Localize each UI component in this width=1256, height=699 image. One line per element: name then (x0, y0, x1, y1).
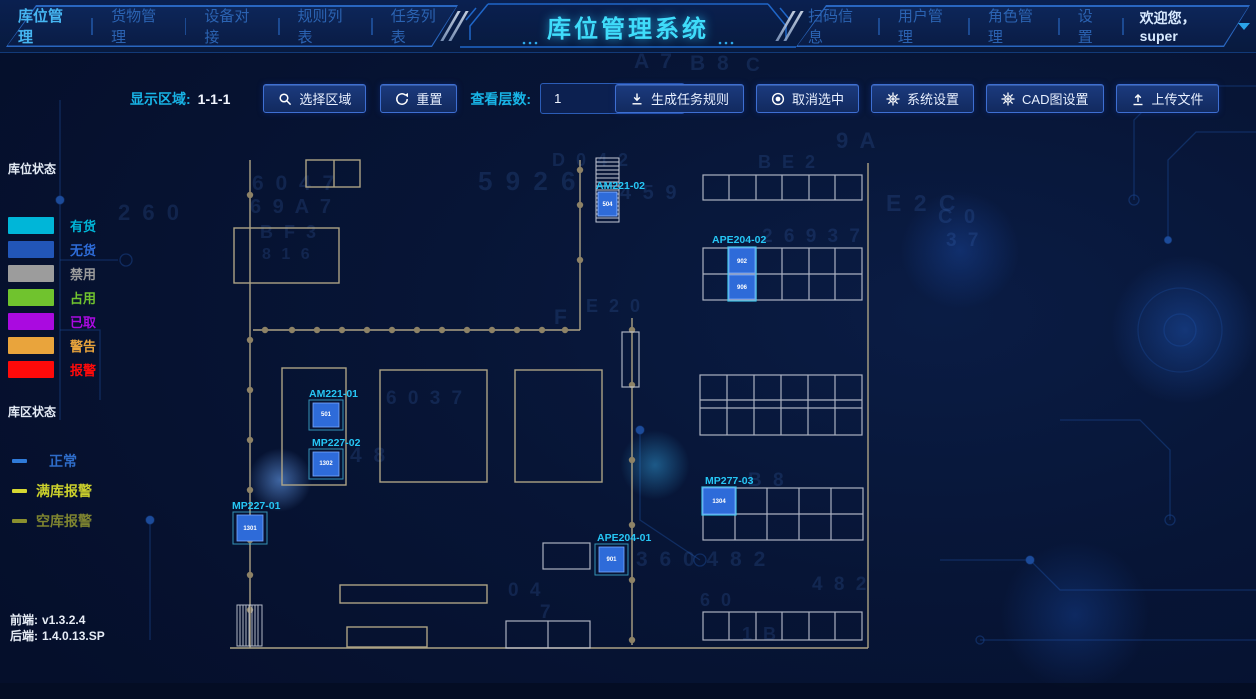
cell-number: 1304 (712, 499, 726, 505)
reset-button[interactable]: 重置 (380, 84, 457, 113)
search-icon (278, 92, 292, 106)
storage-unit-ape204-02[interactable]: 902 906 APE204-02 (712, 234, 766, 301)
bottom-band (0, 683, 1256, 699)
nav-separator (185, 18, 187, 35)
top-bar: 库位管理货物管理设备对接规则列表任务列表 库位管理系统 扫码信息用户管理角色管理… (0, 0, 1256, 53)
stairs-bottom (237, 605, 262, 646)
top-nav-item[interactable]: 用户管理 (886, 5, 962, 47)
upload-file-button[interactable]: 上传文件 (1116, 84, 1219, 113)
storage-unit-am221-02[interactable]: 504 AM221-02 (596, 180, 645, 216)
nav-separator (968, 18, 970, 35)
upload-file-label: 上传文件 (1152, 89, 1204, 108)
toolbar-left: 显示区域: 1-1-1 选择区域 重置 查看层数: 1 (130, 84, 685, 113)
unit-label: APE204-02 (712, 234, 766, 246)
page-title: 库位管理系统 (547, 9, 709, 44)
top-nav-item[interactable]: 任务列表 (379, 5, 458, 47)
storage-unit-am221-01[interactable]: 501 AM221-01 (309, 388, 358, 430)
legend-label: 报警 (70, 360, 96, 379)
nav-left-items: 库位管理货物管理设备对接规则列表任务列表 (6, 5, 458, 47)
nav-separator (278, 18, 280, 35)
slot-status-title: 库位状态 (8, 160, 96, 177)
legend-label: 禁用 (70, 264, 96, 283)
cell-number: 1302 (319, 461, 333, 467)
nav-right-group: 扫码信息用户管理角色管理设置 欢迎您，super (796, 5, 1250, 47)
nav-separator (371, 18, 373, 35)
nav-left-group: 库位管理货物管理设备对接规则列表任务列表 (6, 5, 458, 47)
legend-line-swatch (12, 489, 27, 493)
legend-color-swatch (8, 337, 54, 354)
frontend-version: 前端:v1.3.2.4 (10, 612, 109, 628)
decor-hex-text: C (746, 55, 763, 77)
legend-label: 正常 (49, 451, 77, 471)
refresh-icon (395, 92, 409, 106)
cell-number: 504 (602, 202, 613, 208)
backend-version-value: 1.4.0.13.SP (42, 629, 105, 643)
legend-label: 已取 (70, 312, 96, 331)
cell-number: 501 (321, 412, 332, 418)
legend-label: 满库报警 (36, 481, 92, 501)
legend-label: 空库报警 (36, 511, 92, 531)
select-area-label: 选择区域 (299, 89, 351, 108)
toolbar: 显示区域: 1-1-1 选择区域 重置 查看层数: 1 (0, 84, 1256, 114)
legend-row: 满库报警 (8, 476, 96, 506)
record-circle-icon (771, 92, 785, 106)
nav-right-wrap: 扫码信息用户管理角色管理设置 欢迎您，super (796, 5, 1250, 47)
top-nav-item[interactable]: 扫码信息 (796, 5, 872, 47)
top-nav-item[interactable]: 设备对接 (192, 5, 271, 47)
decor-hex-text: A 7 (634, 50, 675, 74)
legend-row: 有货 (8, 213, 96, 237)
legend-row: 无货 (8, 237, 96, 261)
legend-color-swatch (8, 217, 54, 234)
nav-separator (878, 18, 880, 35)
display-area-value: 1-1-1 (198, 91, 231, 107)
nav-separator (1122, 18, 1124, 35)
gear-icon (1001, 92, 1015, 106)
zone-status-legend: 正常满库报警空库报警 (8, 446, 96, 536)
zone-status-title: 库区状态 (8, 403, 96, 420)
cell-number: 906 (737, 285, 748, 291)
legend-row: 禁用 (8, 261, 96, 285)
plan-rack-grids (506, 175, 863, 648)
backend-version-label: 后端: (10, 629, 38, 643)
select-area-button[interactable]: 选择区域 (263, 84, 366, 113)
download-icon (630, 92, 644, 106)
nav-separator (91, 18, 93, 35)
user-menu[interactable]: 欢迎您，super (1140, 8, 1250, 44)
system-settings-label: 系统设置 (907, 89, 959, 108)
legend-line-swatch (12, 459, 27, 463)
slot-status-legend: 有货无货禁用占用已取警告报警 (8, 213, 96, 381)
frontend-version-label: 前端: (10, 613, 38, 627)
cancel-select-label: 取消选中 (792, 89, 844, 108)
floor-plan: 504 AM221-02 902 906 APE204-02 501 AM221… (225, 150, 885, 658)
view-layer-label: 查看层数: (470, 89, 531, 109)
legend-label: 无货 (70, 240, 96, 259)
system-settings-button[interactable]: 系统设置 (871, 84, 974, 113)
gear-icon (886, 92, 900, 106)
legend-color-swatch (8, 241, 54, 258)
unit-label: MP277-03 (705, 475, 754, 487)
legend-row: 警告 (8, 333, 96, 357)
welcome-text: 欢迎您，super (1140, 8, 1224, 44)
unit-label: MP227-01 (232, 500, 281, 512)
decor-hex-text: 2 6 0 (118, 200, 182, 226)
unit-label: AM221-01 (309, 388, 358, 400)
generate-rules-label: 生成任务规则 (651, 89, 729, 108)
unit-label: APE204-01 (597, 532, 651, 544)
legend-label: 警告 (70, 336, 96, 355)
generate-rules-button[interactable]: 生成任务规则 (615, 84, 744, 113)
top-nav-item[interactable]: 库位管理 (6, 5, 85, 47)
legend-row: 空库报警 (8, 506, 96, 536)
toolbar-right: 生成任务规则 取消选中 系统设置 (615, 84, 1219, 113)
decor-hex-text: 3 7 (946, 230, 981, 252)
legend-color-swatch (8, 265, 54, 282)
legend-color-swatch (8, 361, 54, 378)
unit-label: AM221-02 (596, 180, 645, 192)
decor-hex-text: B 8 (690, 52, 732, 76)
backend-version: 后端:1.4.0.13.SP (10, 628, 109, 644)
decor-hex-text: C 0 (938, 206, 978, 229)
reset-label: 重置 (416, 89, 442, 108)
view-layer-value: 1 (554, 91, 561, 106)
legend-color-swatch (8, 289, 54, 306)
legend-label: 有货 (70, 216, 96, 235)
nav-right-items: 扫码信息用户管理角色管理设置 (796, 5, 1116, 47)
nav-separator (1058, 18, 1060, 35)
top-nav-item[interactable]: 角色管理 (976, 5, 1052, 47)
upload-icon (1131, 92, 1145, 106)
legend-panel: 库位状态 有货无货禁用占用已取警告报警 库区状态 正常满库报警空库报警 (8, 160, 96, 536)
cell-number: 1301 (243, 526, 257, 532)
top-nav-item[interactable]: 规则列表 (286, 5, 365, 47)
legend-row: 正常 (8, 446, 96, 476)
legend-color-swatch (8, 313, 54, 330)
cad-settings-label: CAD图设置 (1022, 89, 1088, 108)
legend-row: 已取 (8, 309, 96, 333)
plan-junction-dots (247, 167, 635, 643)
top-nav-item[interactable]: 设置 (1066, 5, 1116, 47)
app-screen: { "header": { "title": "库位管理系统", "nav_le… (0, 0, 1256, 699)
cell-number: 902 (737, 259, 748, 265)
storage-unit-mp227-02[interactable]: 1302 MP227-02 (309, 437, 361, 479)
storage-unit-ape204-01[interactable]: 901 APE204-01 (595, 532, 651, 575)
frontend-version-value: v1.3.2.4 (42, 613, 85, 627)
cad-settings-button[interactable]: CAD图设置 (986, 84, 1103, 113)
unit-label: MP227-02 (312, 437, 361, 449)
chevron-down-icon[interactable] (1238, 23, 1250, 30)
version-info: 前端:v1.3.2.4 后端:1.4.0.13.SP (10, 612, 109, 644)
legend-label: 占用 (70, 288, 96, 307)
cancel-select-button[interactable]: 取消选中 (756, 84, 859, 113)
title-area: 库位管理系统 (458, 0, 798, 52)
display-area-label: 显示区域: (130, 89, 191, 109)
legend-line-swatch (12, 519, 27, 523)
legend-row: 报警 (8, 357, 96, 381)
legend-row: 占用 (8, 285, 96, 309)
storage-unit-mp227-01[interactable]: 1301 MP227-01 (232, 500, 281, 544)
cell-number: 901 (606, 557, 617, 563)
storage-unit-mp277-03[interactable]: 1304 MP277-03 (702, 475, 754, 515)
top-nav-item[interactable]: 货物管理 (99, 5, 178, 47)
